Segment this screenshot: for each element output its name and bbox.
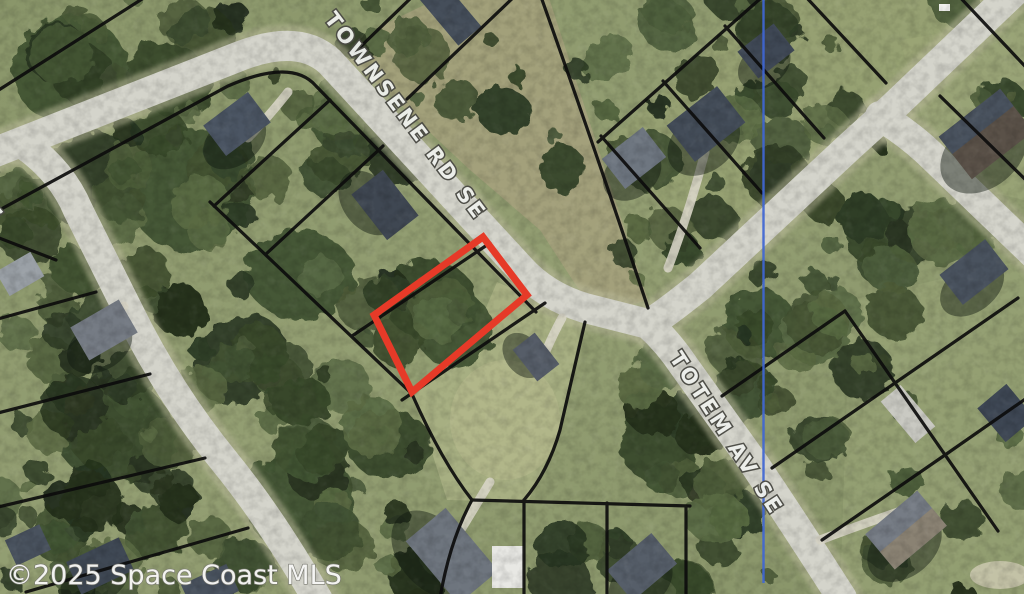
watermark: ©2025 Space Coast MLS	[6, 560, 342, 591]
map-canvas: TOWNSENE RD SE TOTEM AV SE SE ©2025 Spac…	[0, 0, 1024, 594]
mls-aerial-map: TOWNSENE RD SE TOTEM AV SE SE ©2025 Spac…	[0, 0, 1024, 594]
